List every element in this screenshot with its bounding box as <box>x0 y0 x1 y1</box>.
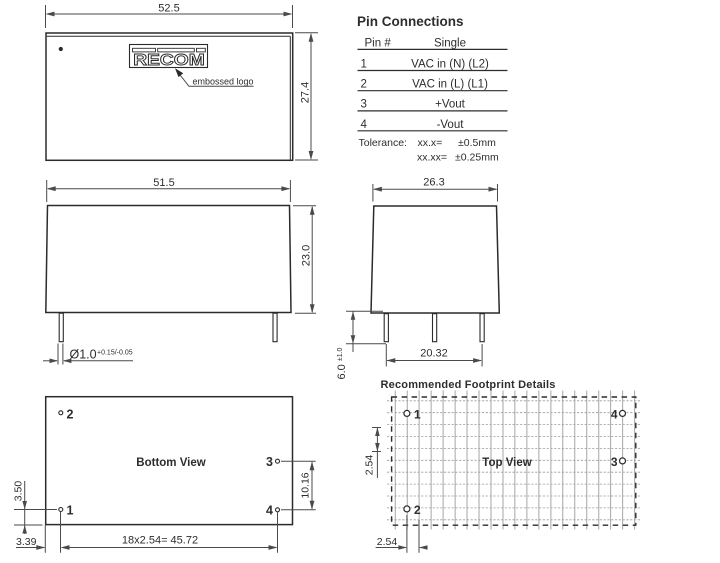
svg-text:RECOM: RECOM <box>133 52 205 69</box>
svg-text:52.5: 52.5 <box>158 3 179 15</box>
svg-text:Ø1.0: Ø1.0 <box>70 347 97 361</box>
svg-text:1: 1 <box>67 503 74 517</box>
svg-text:2: 2 <box>67 407 74 421</box>
svg-text:xx.x=: xx.x= <box>418 137 443 149</box>
svg-text:Pin #: Pin # <box>365 37 392 49</box>
svg-text:3: 3 <box>361 99 367 111</box>
svg-text:4: 4 <box>266 504 273 518</box>
svg-text:6.0 ±1.0: 6.0 ±1.0 <box>336 347 348 379</box>
svg-text:Pin Connections: Pin Connections <box>357 14 464 29</box>
svg-text:26.3: 26.3 <box>423 177 444 189</box>
svg-text:3: 3 <box>266 455 273 469</box>
svg-text:23.0: 23.0 <box>301 245 313 266</box>
svg-text:1: 1 <box>361 58 367 70</box>
svg-text:±0.25mm: ±0.25mm <box>455 152 499 164</box>
svg-text:4: 4 <box>611 407 618 421</box>
svg-text:20.32: 20.32 <box>420 348 448 360</box>
svg-text:xx.xx=: xx.xx= <box>417 152 447 164</box>
svg-text:Top View: Top View <box>482 457 531 469</box>
svg-text:+0.15/-0.05: +0.15/-0.05 <box>97 349 133 356</box>
svg-text:±0.5mm: ±0.5mm <box>458 137 496 149</box>
svg-text:2: 2 <box>361 79 367 91</box>
svg-text:18x2.54= 45.72: 18x2.54= 45.72 <box>122 535 198 547</box>
svg-text:Single: Single <box>434 37 466 49</box>
svg-text:2.54: 2.54 <box>377 536 398 548</box>
svg-text:VAC in (L) (L1): VAC in (L) (L1) <box>412 79 488 91</box>
svg-text:27.4: 27.4 <box>300 82 312 103</box>
svg-text:1: 1 <box>414 407 421 421</box>
svg-text:Recommended Footprint Details: Recommended Footprint Details <box>381 379 556 391</box>
svg-text:3.39: 3.39 <box>16 536 37 548</box>
svg-text:3.50: 3.50 <box>13 481 25 502</box>
svg-text:embossed logo: embossed logo <box>193 76 254 86</box>
svg-text:-Vout: -Vout <box>437 119 465 131</box>
svg-text:3: 3 <box>611 455 618 469</box>
svg-text:Tolerance:: Tolerance: <box>359 137 407 149</box>
svg-text:2.54: 2.54 <box>364 455 376 476</box>
svg-text:4: 4 <box>361 119 368 131</box>
svg-text:VAC in (N) (L2): VAC in (N) (L2) <box>411 58 489 70</box>
svg-text:2: 2 <box>414 503 421 517</box>
svg-text:+Vout: +Vout <box>435 99 466 111</box>
svg-text:51.5: 51.5 <box>153 177 174 189</box>
svg-text:Bottom View: Bottom View <box>136 457 205 469</box>
svg-text:10.16: 10.16 <box>299 472 311 498</box>
